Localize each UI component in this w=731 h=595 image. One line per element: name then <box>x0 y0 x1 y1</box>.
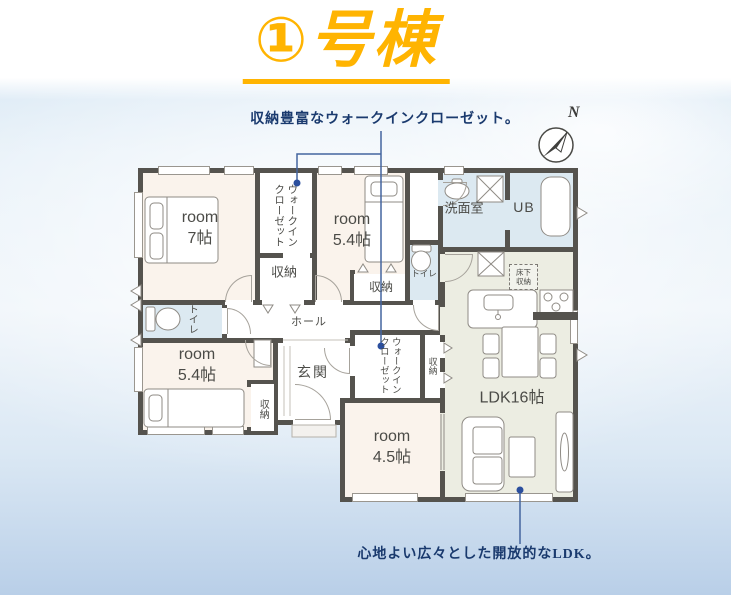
note-top: 収納豊富なウォークインクローゼット。 <box>250 108 520 128</box>
closet-north-b-label: 収納 <box>369 280 393 296</box>
underfloor-storage-label: 床下収納 <box>515 268 532 287</box>
closet-opening <box>355 270 405 274</box>
passage-opening <box>440 307 445 335</box>
entry-door-opening <box>293 420 335 425</box>
toilet-west-area <box>138 300 227 343</box>
floorplan-page: ①号棟 収納豊富なウォークインクローゼット。 心地よい広々とした開放的なLDK。… <box>0 0 731 595</box>
toilet-center-label: トイレ <box>411 268 437 279</box>
underfloor-storage-box: 床下収納 <box>509 264 538 290</box>
toilet-west-label: トイレ <box>185 304 198 334</box>
room45-label: room4.5帖 <box>373 427 411 469</box>
window <box>354 166 388 175</box>
closet-center-label: 収納 <box>426 357 437 375</box>
window <box>134 347 143 392</box>
room7-label: room7帖 <box>182 208 218 250</box>
door-opening <box>350 346 355 376</box>
window <box>158 166 210 175</box>
closet-west-label: 収納 <box>256 399 269 419</box>
window <box>444 166 464 175</box>
wic-opening <box>283 253 310 258</box>
window <box>352 493 418 502</box>
wic-center-label: ウォークインクローゼット <box>377 337 401 397</box>
window <box>224 166 254 175</box>
washroom-label: 洗面室 <box>444 201 483 218</box>
compass-icon <box>539 128 573 162</box>
unit-bath-label: UB <box>513 198 534 216</box>
window <box>570 310 578 344</box>
ldk-label: LDK16帖 <box>480 389 545 410</box>
page-title: ①号棟 <box>243 4 450 84</box>
closet-north-a-label: 収納 <box>271 265 297 282</box>
entrance-porch-step <box>292 425 336 437</box>
room54-west-label: room5.4帖 <box>178 345 216 387</box>
sliding-door-opening <box>440 413 445 471</box>
closet-opening <box>247 387 251 427</box>
closet-opening <box>440 342 445 358</box>
window <box>212 426 244 435</box>
window <box>318 166 342 175</box>
window <box>134 192 143 258</box>
room54-north-label: room5.4帖 <box>333 210 371 252</box>
door-opening <box>505 200 510 230</box>
window <box>147 426 205 435</box>
hall-label: ホール <box>291 315 327 329</box>
compass-north-label: N <box>568 104 580 122</box>
entrance-label: 玄関 <box>297 363 329 381</box>
closet-opening <box>262 300 304 305</box>
entrance-step-opening <box>283 338 345 343</box>
note-bottom: 心地よい広々とした開放的なLDK。 <box>357 543 600 563</box>
window <box>465 493 553 502</box>
closet-opening <box>440 372 445 388</box>
wic-north-label: ウォークインクローゼット <box>272 184 298 250</box>
